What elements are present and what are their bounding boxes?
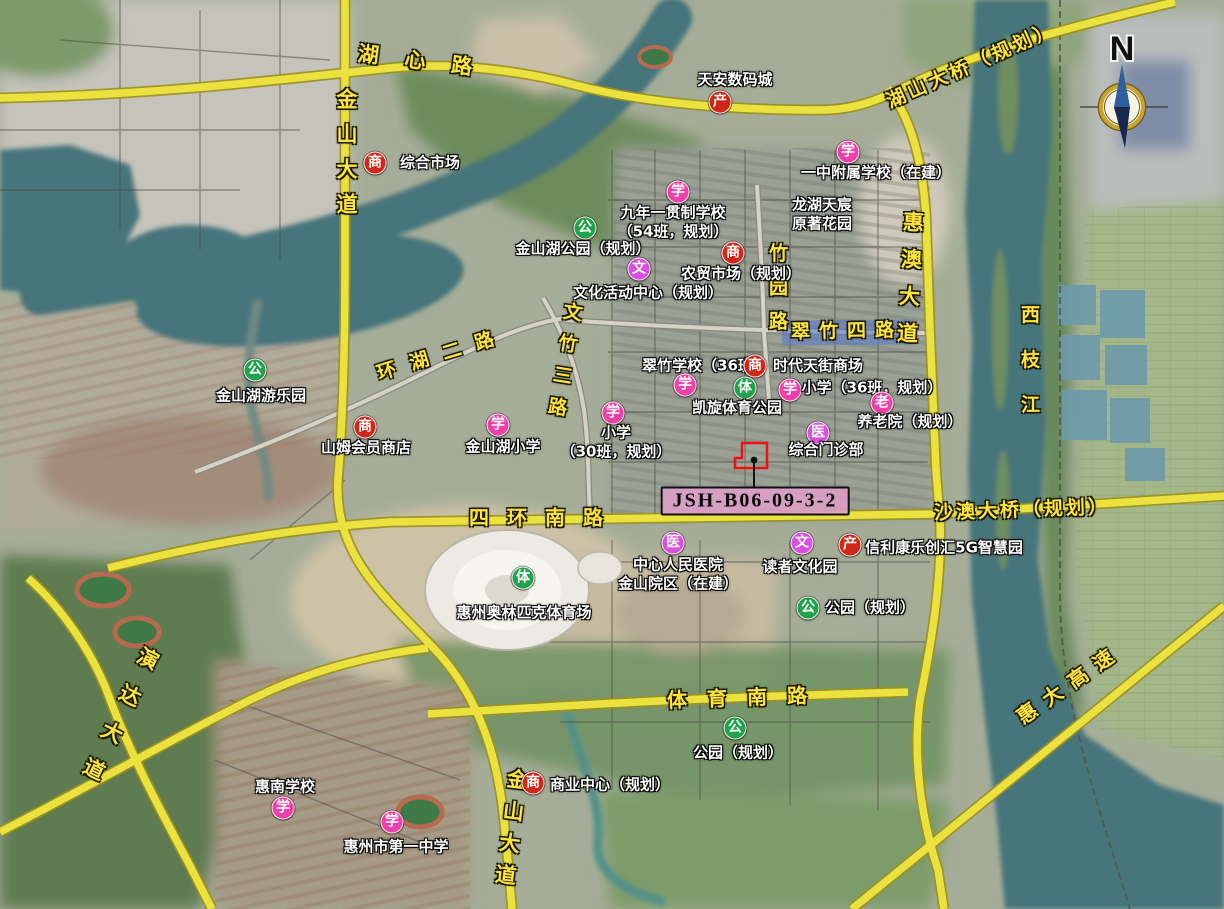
- satellite-base-art: N: [0, 0, 1224, 909]
- road-highlight-band: [782, 319, 912, 345]
- parcel-dot: [751, 457, 758, 464]
- road-wenzhu-3rd: [543, 298, 590, 518]
- parcel-id-label: JSH-B06-09-3-2: [661, 487, 850, 516]
- satellite-planning-map: N 湖心路湖山大桥（规划）金山大道惠澳大道竹园路翠竹四路环湖二路文竹三路四环南路…: [0, 0, 1224, 909]
- compass-n-label: N: [1110, 30, 1135, 68]
